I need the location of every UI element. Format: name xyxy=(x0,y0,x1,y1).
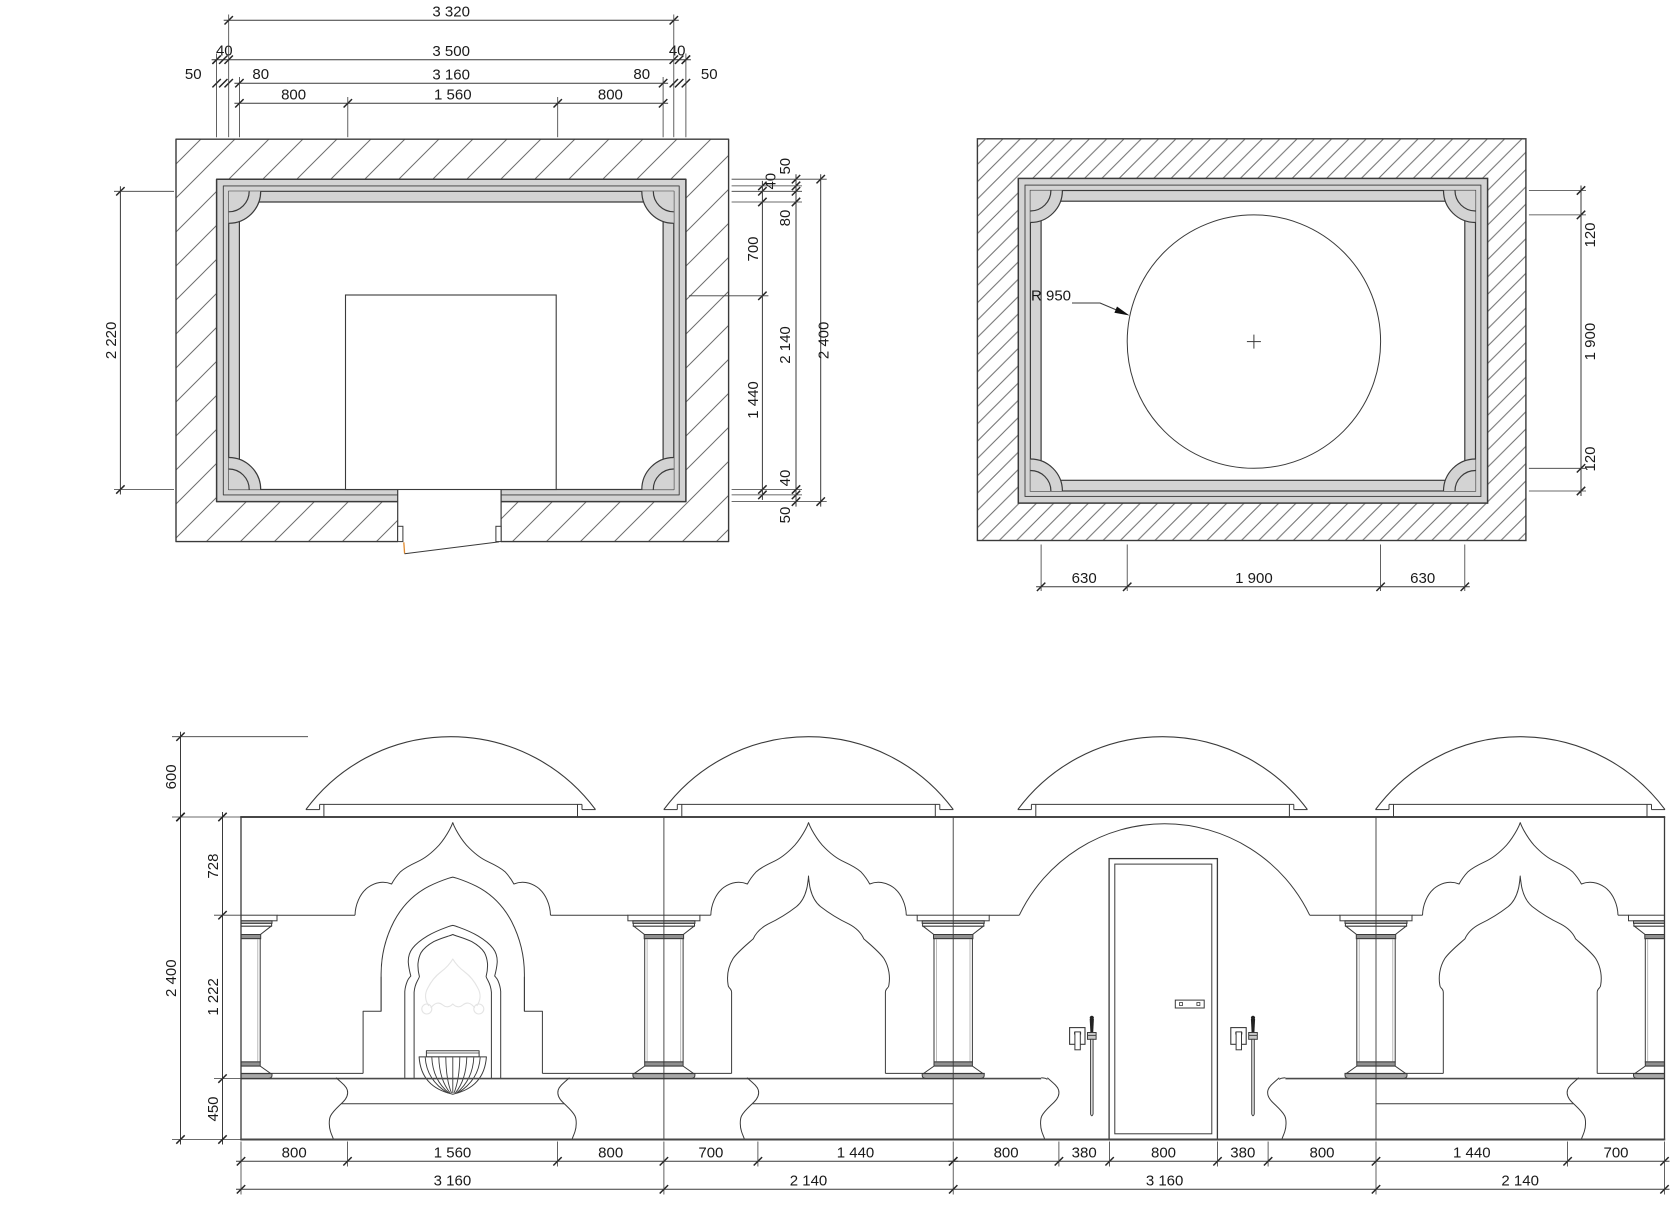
svg-text:3 160: 3 160 xyxy=(434,1173,472,1190)
svg-text:50: 50 xyxy=(185,66,202,83)
svg-text:380: 380 xyxy=(1072,1145,1097,1162)
svg-text:800: 800 xyxy=(598,87,623,104)
svg-text:R 950: R 950 xyxy=(1031,288,1071,305)
svg-text:1 560: 1 560 xyxy=(434,87,472,104)
svg-text:3 160: 3 160 xyxy=(432,67,470,84)
svg-text:80: 80 xyxy=(777,210,794,227)
svg-text:80: 80 xyxy=(633,66,650,83)
svg-text:800: 800 xyxy=(282,1145,307,1162)
svg-text:50: 50 xyxy=(777,507,794,524)
svg-text:2 400: 2 400 xyxy=(816,322,833,360)
svg-text:120: 120 xyxy=(1582,446,1599,471)
svg-text:630: 630 xyxy=(1072,570,1097,587)
svg-text:2 140: 2 140 xyxy=(777,326,794,364)
svg-text:800: 800 xyxy=(598,1145,623,1162)
svg-text:1 900: 1 900 xyxy=(1235,570,1273,587)
svg-text:2 140: 2 140 xyxy=(790,1173,828,1190)
svg-text:50: 50 xyxy=(777,158,794,175)
svg-text:700: 700 xyxy=(745,236,762,261)
svg-text:1 440: 1 440 xyxy=(837,1145,875,1162)
svg-text:2 140: 2 140 xyxy=(1501,1173,1539,1190)
svg-text:3 320: 3 320 xyxy=(432,4,470,21)
svg-text:1 560: 1 560 xyxy=(434,1145,472,1162)
svg-text:40: 40 xyxy=(777,470,794,487)
svg-text:3 160: 3 160 xyxy=(1146,1173,1184,1190)
svg-text:630: 630 xyxy=(1410,570,1435,587)
svg-text:700: 700 xyxy=(1603,1145,1628,1162)
svg-text:2 220: 2 220 xyxy=(103,322,120,360)
svg-text:600: 600 xyxy=(163,764,180,789)
svg-text:450: 450 xyxy=(205,1096,222,1121)
svg-text:1 440: 1 440 xyxy=(745,381,762,419)
svg-text:1 440: 1 440 xyxy=(1453,1145,1491,1162)
svg-text:120: 120 xyxy=(1582,222,1599,247)
svg-text:800: 800 xyxy=(994,1145,1019,1162)
svg-text:80: 80 xyxy=(252,66,269,83)
svg-text:2 400: 2 400 xyxy=(163,959,180,997)
svg-text:3 500: 3 500 xyxy=(432,43,470,60)
svg-text:1 222: 1 222 xyxy=(205,978,222,1016)
svg-text:1 900: 1 900 xyxy=(1582,323,1599,361)
svg-text:728: 728 xyxy=(205,854,222,879)
svg-text:700: 700 xyxy=(698,1145,723,1162)
svg-text:380: 380 xyxy=(1230,1145,1255,1162)
svg-text:800: 800 xyxy=(1309,1145,1334,1162)
svg-text:50: 50 xyxy=(701,66,718,83)
svg-text:800: 800 xyxy=(281,87,306,104)
svg-text:800: 800 xyxy=(1151,1145,1176,1162)
